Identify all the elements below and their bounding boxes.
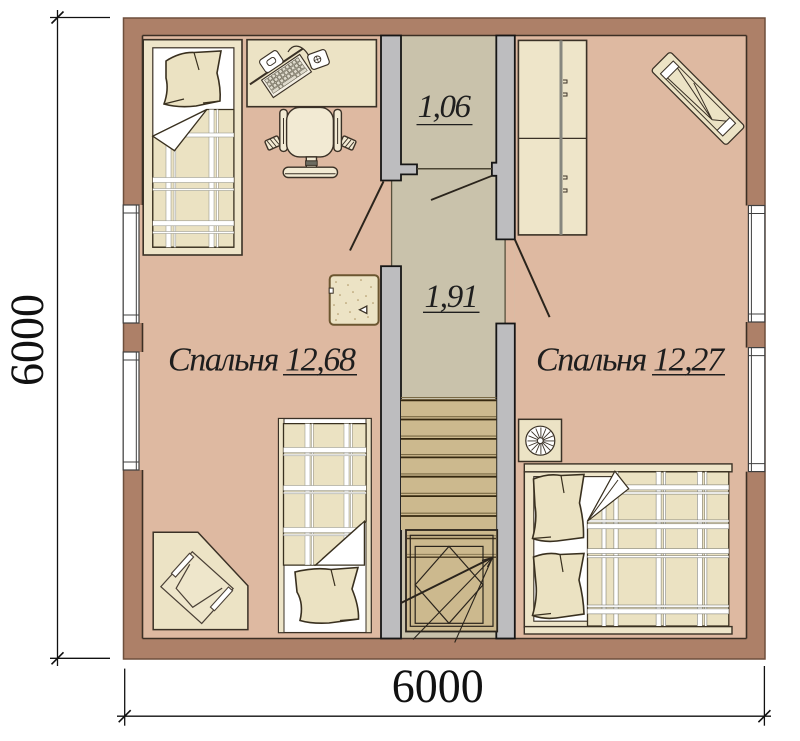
svg-text:Спальня 12,27: Спальня 12,27 <box>536 342 726 379</box>
svg-text:1,91: 1,91 <box>425 279 479 315</box>
svg-text:Спальня 12,68: Спальня 12,68 <box>168 342 356 379</box>
svg-text:1,06: 1,06 <box>418 89 472 125</box>
svg-text:6000: 6000 <box>1 294 54 386</box>
svg-text:6000: 6000 <box>392 660 484 713</box>
